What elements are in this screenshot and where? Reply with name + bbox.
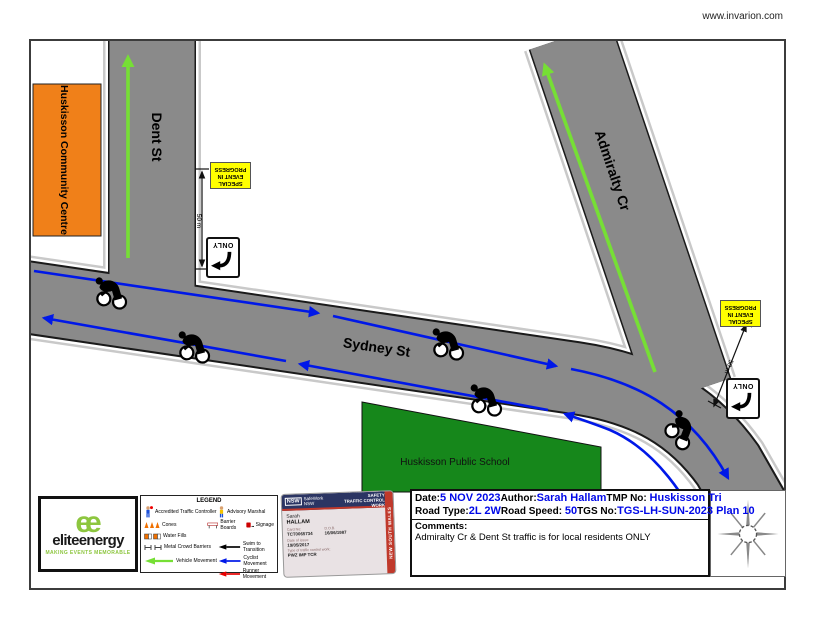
elite-energy-logo: ee eliteenergy MAKING EVENTS MEMORABLE bbox=[38, 496, 138, 572]
title-block: Date:5 NOV 2023 Author:Sarah Hallam TMP … bbox=[410, 489, 710, 577]
road-speed: 50 bbox=[565, 505, 577, 517]
comments-text: Admiralty Cr & Dent St traffic is for lo… bbox=[415, 532, 651, 543]
card-body: Sarah HALLAM Card No: TCT0065734 D.O.B. … bbox=[282, 507, 395, 558]
swim-arrow-icon bbox=[218, 543, 241, 551]
street-label-dent: Dent St bbox=[149, 113, 165, 162]
road-network: 50 m 50 m Dent St Sydney St Admiralty Cr… bbox=[18, 36, 772, 548]
tgs-number: TGS-LH-SUN-2023 Plan 10 bbox=[617, 505, 755, 517]
cyclist-arrow-icon bbox=[218, 557, 241, 565]
special-event-sign: SPECIAL EVENT IN PROGRESS bbox=[720, 300, 761, 327]
barrier-boards-icon bbox=[207, 521, 219, 530]
school-label: Huskisson Public School bbox=[400, 457, 510, 468]
runner-arrow-icon bbox=[218, 570, 241, 578]
comments-label: Comments: bbox=[415, 521, 705, 532]
distance-label: 50 m bbox=[195, 214, 202, 228]
turn-only-sign: ONLY bbox=[726, 378, 760, 419]
turn-only-sign: ONLY bbox=[206, 237, 240, 278]
signage-icon bbox=[246, 521, 254, 529]
curved-arrow-icon bbox=[729, 391, 757, 415]
curved-arrow-icon bbox=[209, 250, 237, 274]
card-number: TCT0065734 bbox=[287, 531, 313, 537]
legend: LEGEND Accredited Traffic Controller Adv… bbox=[140, 495, 278, 573]
vehicle-arrow-icon bbox=[144, 557, 174, 565]
tmp-number: Huskisson Tri bbox=[650, 492, 722, 504]
traffic-control-licence-card: NSW SafeWork NSW WORK HEALTH & SAFETY TR… bbox=[281, 490, 397, 578]
community-centre-label: Huskisson Community Centre bbox=[58, 85, 70, 235]
traffic-guidance-scheme-page: www.invarion.com bbox=[0, 0, 813, 628]
plan-date: 5 NOV 2023 bbox=[440, 492, 501, 504]
traffic-controller-icon bbox=[144, 506, 153, 518]
crowd-barriers-icon bbox=[144, 544, 162, 551]
brand-tagline: MAKING EVENTS MEMORABLE bbox=[45, 550, 130, 556]
plan-author: Sarah Hallam bbox=[537, 492, 607, 504]
card-header: NSW SafeWork NSW WORK HEALTH & SAFETY TR… bbox=[282, 491, 393, 511]
legend-title: LEGEND bbox=[144, 498, 274, 504]
special-event-sign: SPECIAL EVENT IN PROGRESS bbox=[210, 162, 251, 189]
nsw-logo: NSW bbox=[285, 497, 302, 506]
road-type: 2L 2W bbox=[469, 505, 501, 517]
elite-energy-monogram-icon: ee bbox=[75, 512, 94, 533]
card-state-stripe: NEW SOUTH WALES bbox=[385, 491, 396, 573]
brand-name: eliteenergy bbox=[52, 533, 124, 548]
advisory-marshal-icon bbox=[218, 506, 225, 518]
cones-icon bbox=[144, 521, 160, 529]
water-fills-icon bbox=[144, 533, 161, 540]
card-dob: 16/06/1987 bbox=[325, 530, 347, 536]
